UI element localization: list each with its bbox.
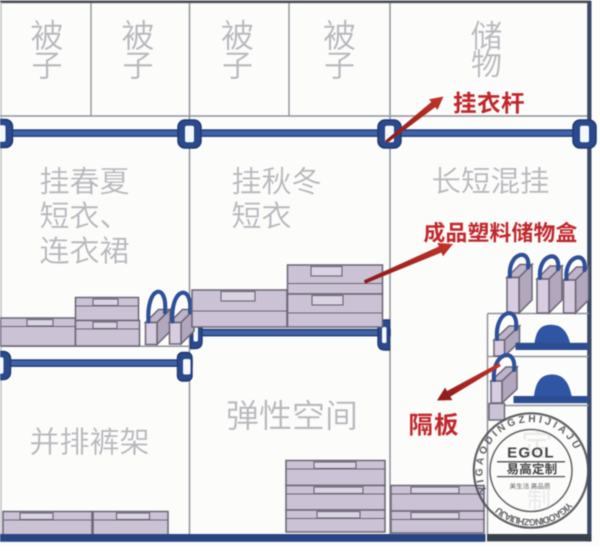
svg-text:EGOL: EGOL [507, 445, 555, 462]
